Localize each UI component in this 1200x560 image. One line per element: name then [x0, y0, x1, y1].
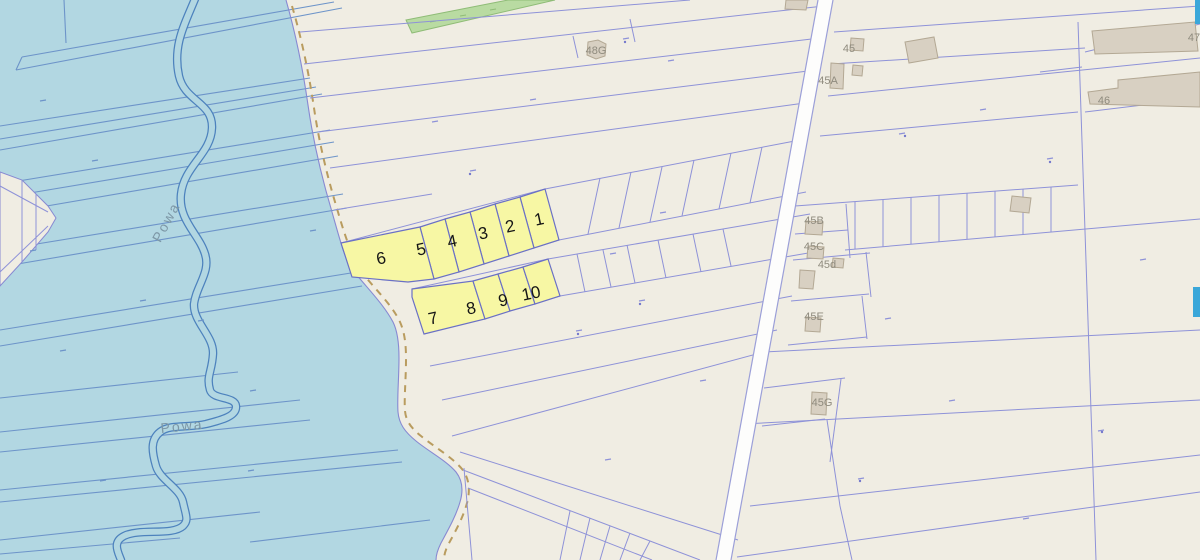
edge-widget-right[interactable]	[1193, 287, 1200, 317]
building	[852, 65, 863, 76]
edge-widget-top[interactable]	[1195, 0, 1200, 24]
map-viewport[interactable]: 1 2 3 4 5 6 7 8 9 10 48G 45 45A 45B 45C …	[0, 0, 1200, 560]
parcel-label-10: 10	[520, 282, 542, 305]
building	[785, 0, 808, 10]
address-label-45: 45	[843, 43, 855, 55]
address-label-46: 46	[1098, 95, 1110, 107]
address-label-45b: 45B	[804, 215, 824, 227]
building	[1010, 196, 1031, 213]
address-label-45g: 45G	[812, 397, 833, 409]
address-label-45a: 45A	[818, 75, 838, 87]
address-label-48g: 48G	[586, 45, 607, 57]
address-label-45e: 45E	[804, 311, 824, 323]
address-label-47: 47	[1188, 32, 1200, 44]
address-label-45c: 45C	[804, 241, 824, 253]
building	[905, 37, 938, 63]
address-label-45d: 45d	[818, 259, 836, 271]
building	[799, 270, 815, 289]
map-canvas[interactable]: 1 2 3 4 5 6 7 8 9 10 48G 45 45A 45B 45C …	[0, 0, 1200, 560]
